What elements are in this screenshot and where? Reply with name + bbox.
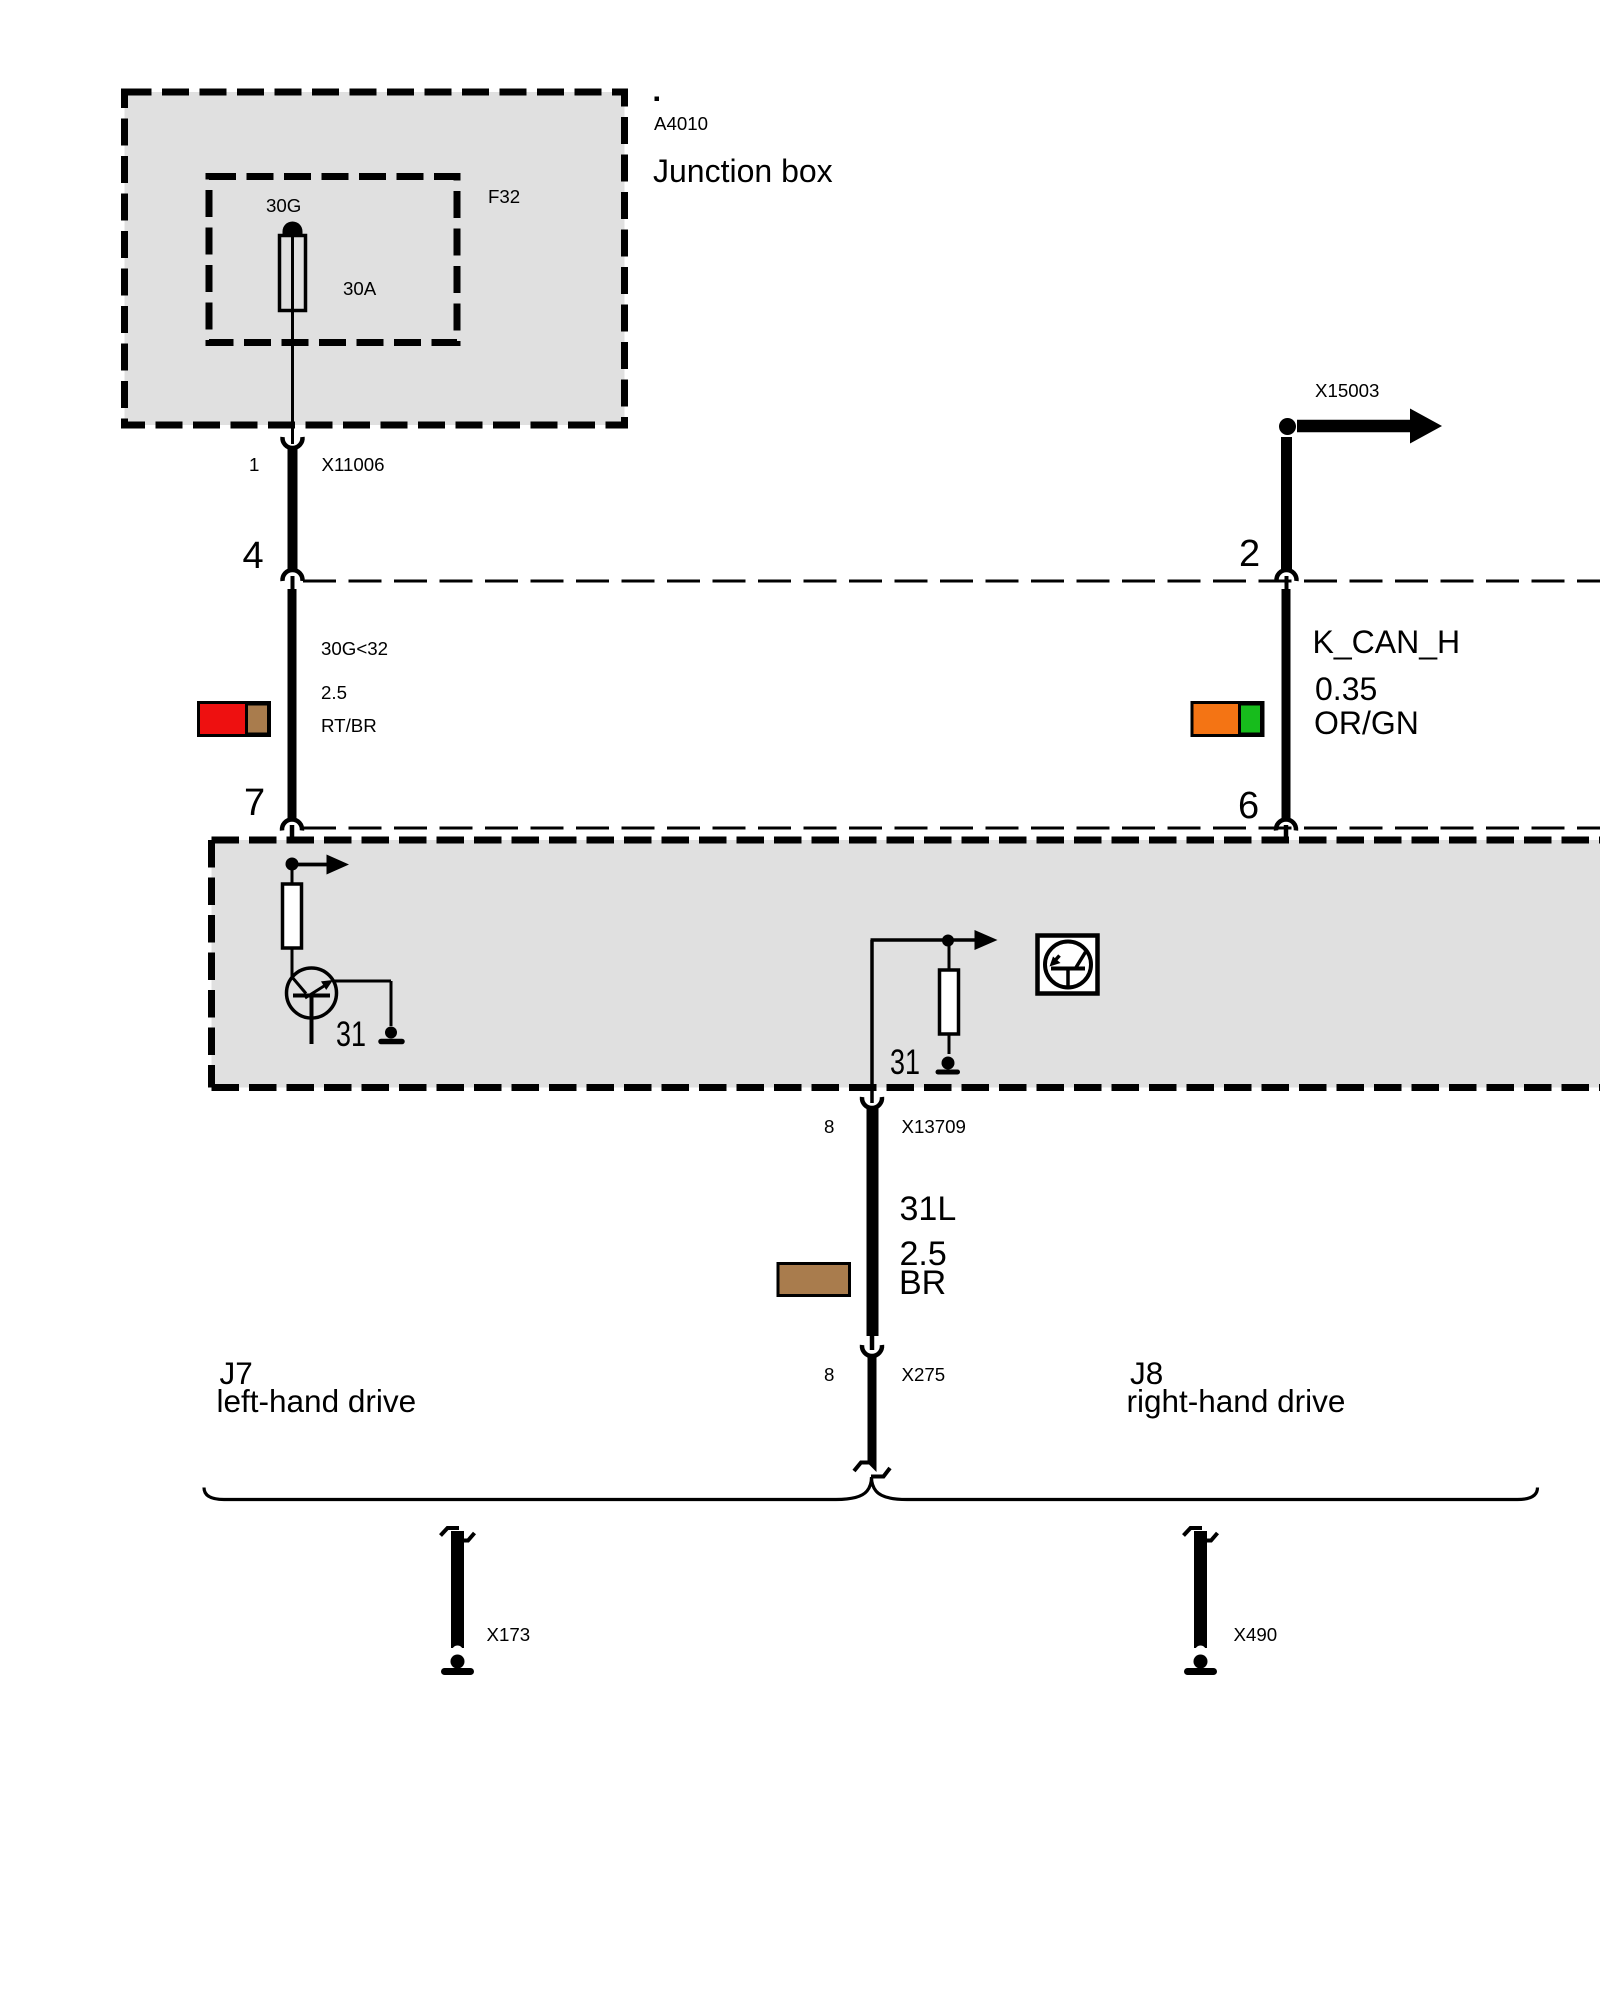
svg-text:BR: BR [899,1264,946,1302]
svg-text:left-hand drive: left-hand drive [217,1383,417,1419]
svg-text:right-hand drive: right-hand drive [1127,1383,1346,1419]
svg-text:4: 4 [243,535,264,577]
svg-text:X490: X490 [1234,1624,1278,1645]
svg-text:OR/GN: OR/GN [1314,705,1419,741]
svg-text:31: 31 [890,1043,920,1082]
svg-text:X275: X275 [902,1364,946,1385]
svg-text:A4010: A4010 [654,113,708,134]
svg-text:0.35: 0.35 [1315,671,1377,707]
svg-text:RT/BR: RT/BR [321,715,377,736]
svg-text:30A: 30A [343,278,377,299]
svg-text:8: 8 [824,1116,834,1137]
svg-text:X13709: X13709 [902,1116,966,1137]
svg-text:31L: 31L [900,1190,957,1228]
svg-text:X11006: X11006 [322,454,385,475]
svg-text:7: 7 [244,782,265,824]
svg-text:30G<32: 30G<32 [321,638,388,659]
svg-text:30G: 30G [266,195,301,216]
svg-text:Junction box: Junction box [653,153,833,189]
svg-text:2: 2 [1239,533,1260,575]
svg-text:F32: F32 [488,186,520,207]
svg-text:X173: X173 [487,1624,531,1645]
svg-text:6: 6 [1238,785,1259,827]
svg-text:8: 8 [824,1364,834,1385]
svg-text:1: 1 [249,454,259,475]
svg-text:X15003: X15003 [1315,380,1379,401]
svg-text:31: 31 [336,1015,366,1054]
svg-text:K_CAN_H: K_CAN_H [1313,624,1461,660]
svg-text:2.5: 2.5 [321,682,347,703]
